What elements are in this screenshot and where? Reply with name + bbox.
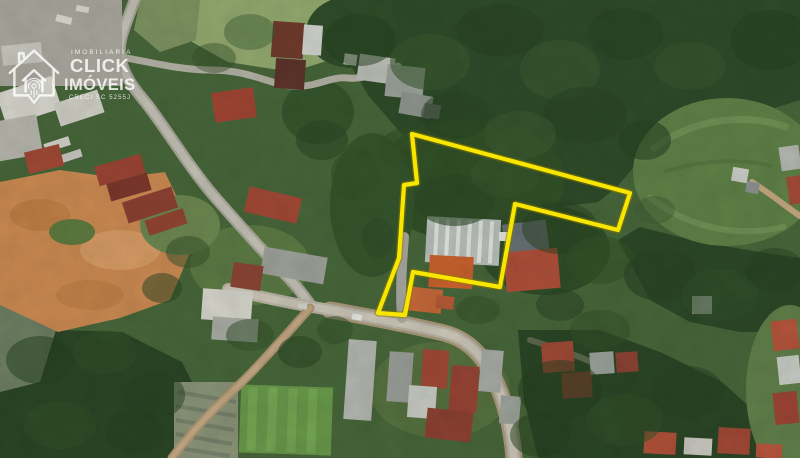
satellite-map	[0, 0, 800, 458]
satellite-listing-image: IMOBILIARIA CLICK IMÓVEIS CRECI SC 5255J	[0, 0, 800, 458]
